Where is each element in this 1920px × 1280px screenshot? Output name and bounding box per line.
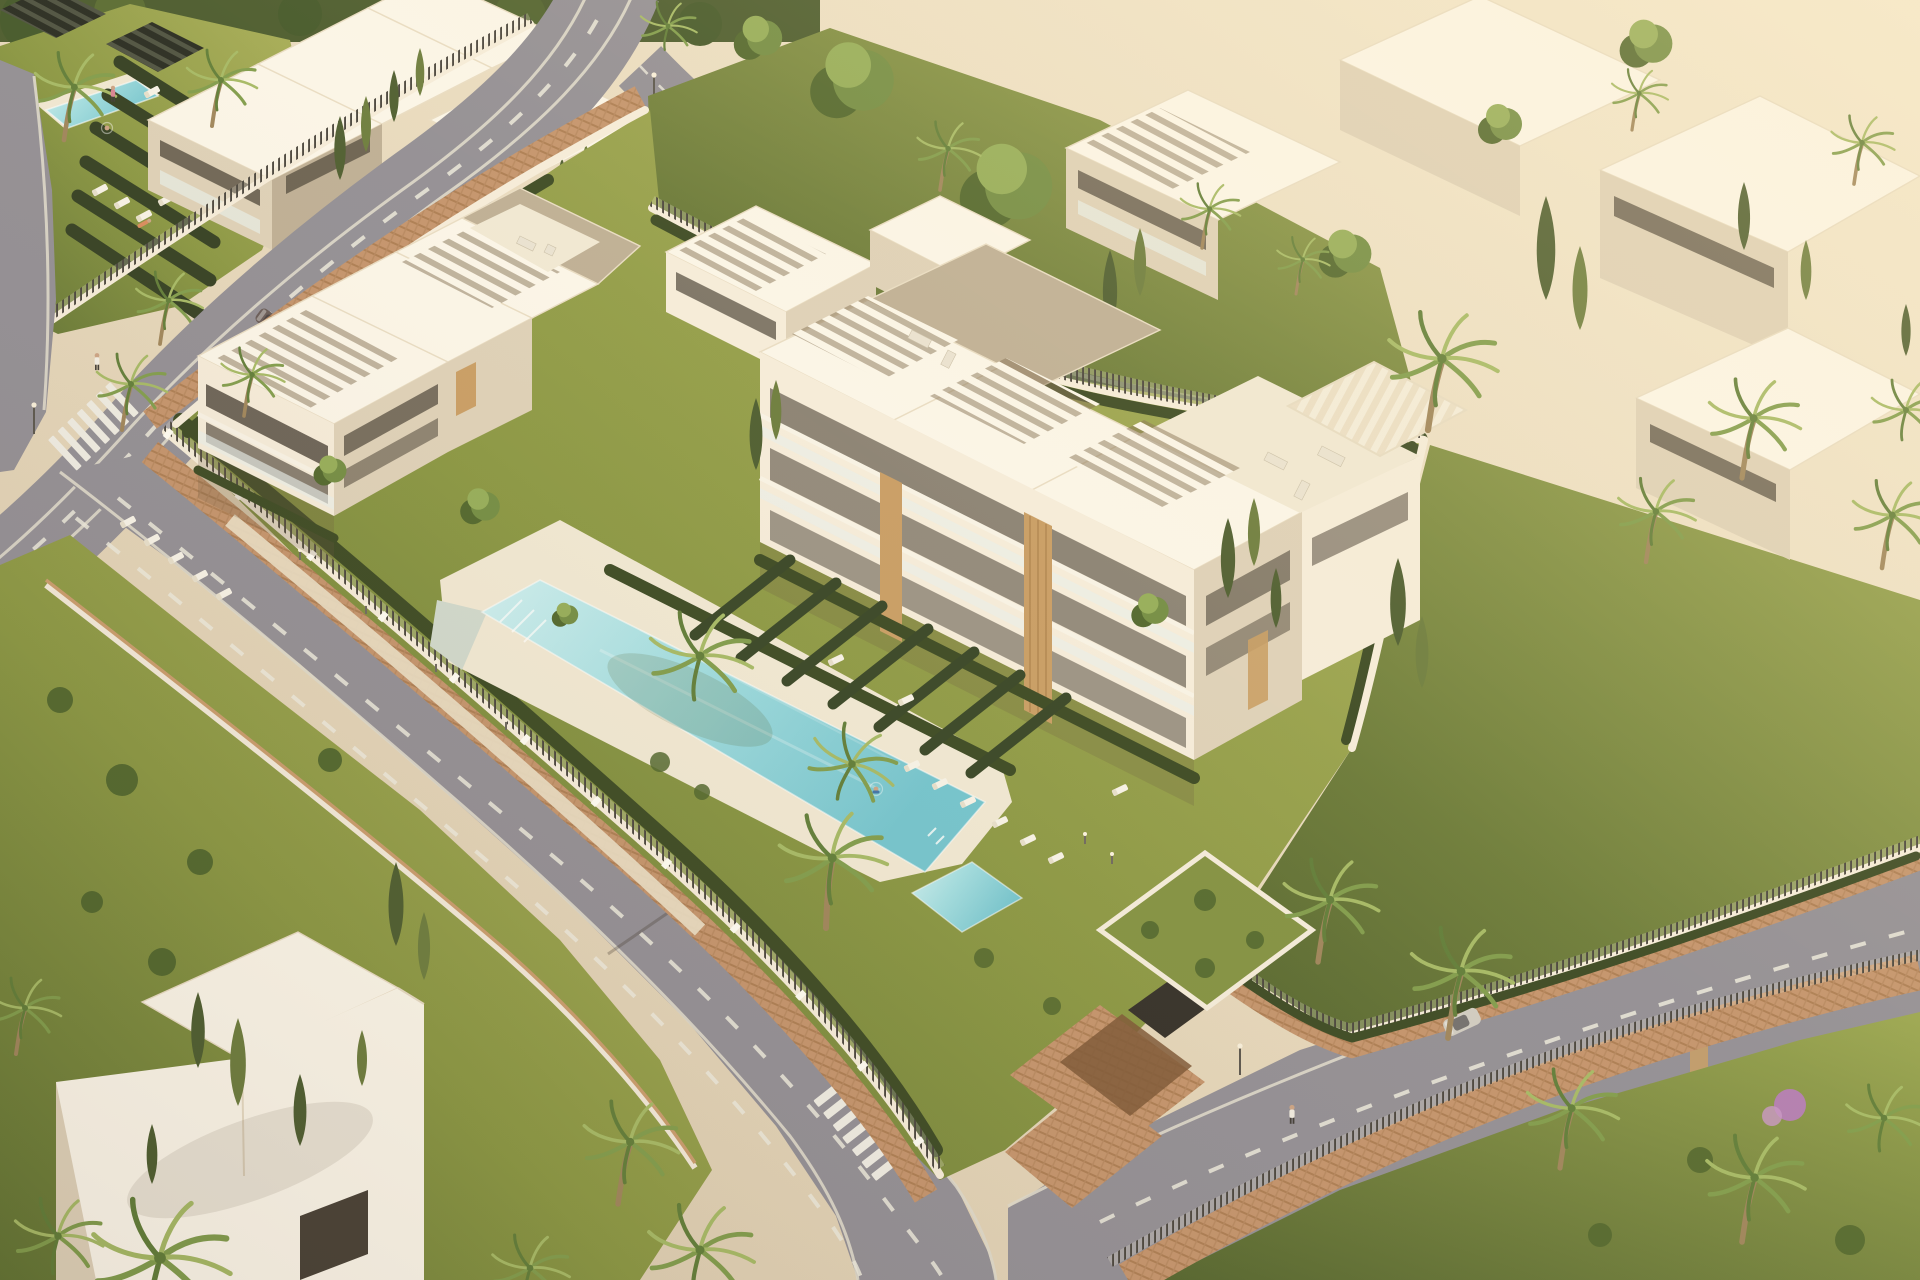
sunlight-overlay [0,0,1920,1280]
aerial-render [0,0,1920,1280]
aerial-render-stage [0,0,1920,1280]
